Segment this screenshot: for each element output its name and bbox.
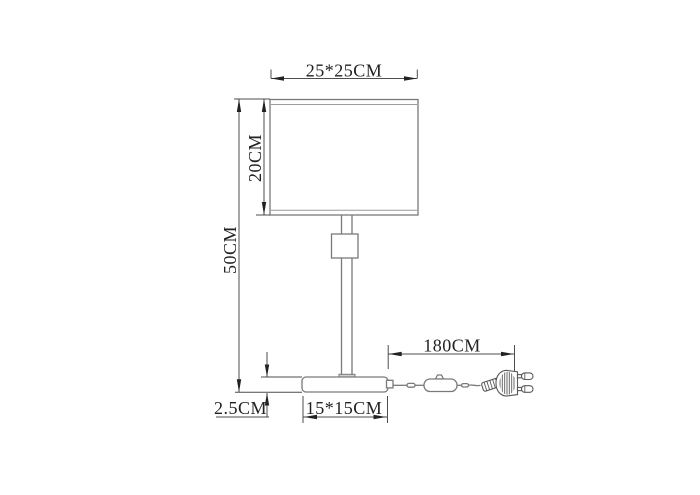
cable-length-label: 180CM bbox=[423, 336, 481, 356]
shade-height-label: 20CM bbox=[245, 134, 265, 182]
plug-pin-bottom bbox=[518, 386, 534, 393]
socket-block bbox=[332, 234, 359, 258]
arrowhead-up bbox=[262, 99, 266, 112]
cable-exit-nub bbox=[387, 380, 394, 388]
arrowhead-right bbox=[404, 76, 417, 80]
cable-joint bbox=[462, 384, 469, 387]
cable-joint bbox=[407, 383, 415, 387]
lampshade-outline bbox=[270, 100, 418, 216]
lamp-stem bbox=[332, 215, 359, 377]
arrowhead-up bbox=[237, 99, 241, 112]
arrowhead-down bbox=[237, 379, 241, 392]
lamp-dimension-drawing: 25*25CM 20CM 50CM 2.5CM 15*15CM bbox=[0, 0, 700, 495]
arrowhead-down bbox=[262, 202, 266, 215]
dim-base-thickness: 2.5CM bbox=[214, 352, 302, 418]
switch-body bbox=[424, 379, 457, 392]
plug-pin-top bbox=[518, 373, 534, 380]
dim-shade-width: 25*25CM bbox=[271, 61, 417, 81]
drawing-canvas: 25*25CM 20CM 50CM 2.5CM 15*15CM bbox=[0, 0, 700, 495]
total-height-label: 50CM bbox=[220, 226, 240, 274]
arrowhead-right bbox=[501, 352, 514, 356]
base-thickness-label: 2.5CM bbox=[214, 398, 267, 418]
dim-cable-length: 180CM bbox=[388, 336, 514, 372]
shade-width-label: 25*25CM bbox=[306, 61, 383, 81]
dim-base-size: 15*15CM bbox=[303, 396, 388, 423]
power-cable bbox=[387, 370, 534, 396]
lamp-base bbox=[302, 377, 388, 392]
arrowhead-left bbox=[389, 352, 402, 356]
arrowhead-left bbox=[271, 76, 284, 80]
power-plug bbox=[496, 370, 533, 396]
arrowhead-down bbox=[265, 365, 269, 378]
inline-switch bbox=[424, 375, 457, 392]
dim-shade-height: 20CM bbox=[245, 99, 270, 215]
base-size-label: 15*15CM bbox=[306, 398, 383, 418]
lampshade bbox=[270, 100, 418, 216]
base-outline bbox=[302, 377, 388, 392]
